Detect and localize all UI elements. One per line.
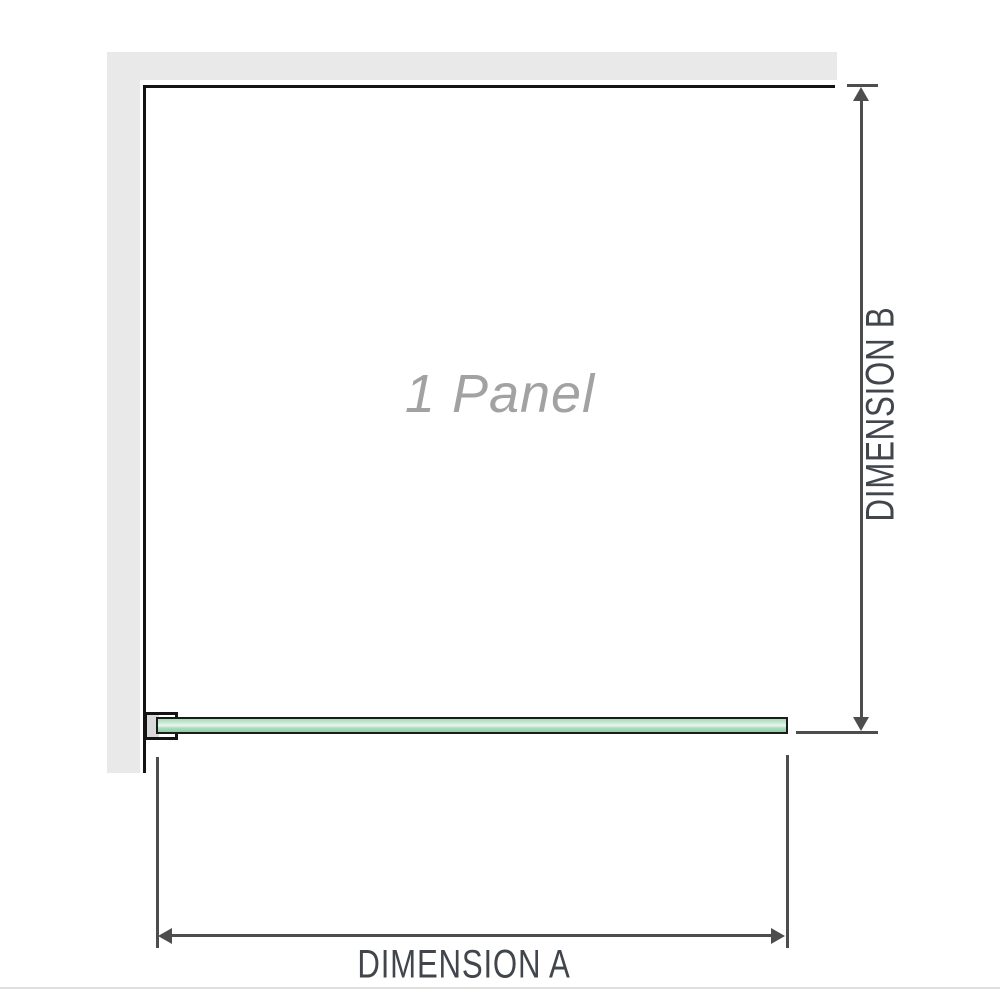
bottom-divider-line [0, 987, 1000, 989]
wall-left [107, 52, 140, 773]
glass-panel [156, 717, 788, 734]
panel-outline-left-line [143, 85, 146, 773]
panel-dimension-diagram: 1 Panel DIMENSION B DIMENSION A [0, 0, 1000, 1000]
dimension-a-line [168, 934, 774, 937]
dimension-a-right-extension-line [786, 755, 789, 948]
arrow-up-icon [853, 87, 869, 101]
dimension-b-bottom-tick [796, 731, 878, 734]
arrow-down-icon [853, 717, 869, 731]
dimension-a-label: DIMENSION A [357, 943, 570, 988]
wall-top [107, 52, 837, 80]
dimension-b-label: DIMENSION B [859, 307, 904, 522]
panel-outline-top-line [143, 85, 835, 88]
arrow-left-icon [158, 928, 172, 944]
panel-count-label: 1 Panel [405, 363, 595, 425]
arrow-right-icon [771, 928, 785, 944]
dimension-a-left-extension-line [156, 757, 159, 948]
